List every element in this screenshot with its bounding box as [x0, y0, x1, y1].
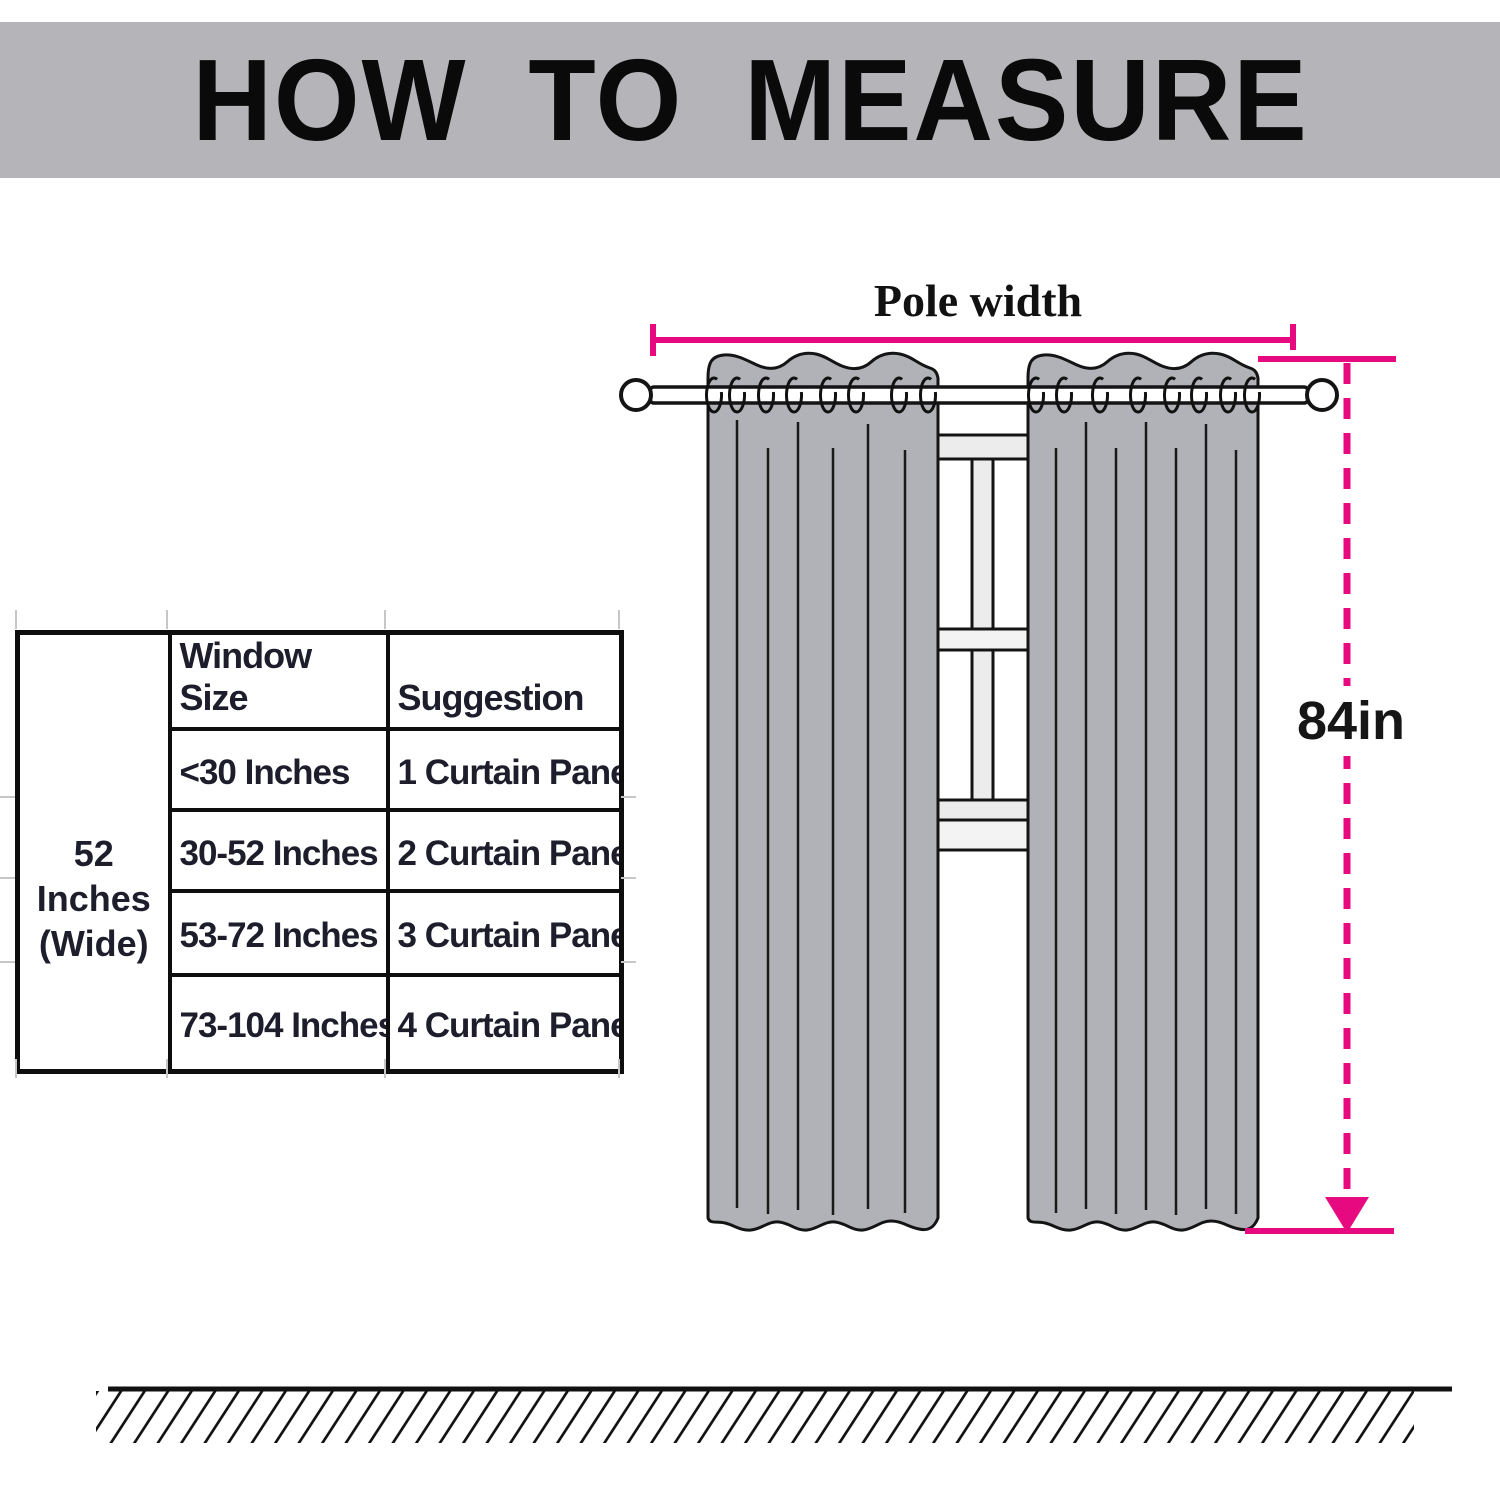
gridline-stub — [621, 877, 636, 879]
suggestion-cell: 1 Curtain Panel — [388, 729, 622, 810]
column-header-window-size: Window Size — [170, 633, 388, 730]
rod-finial-left — [621, 380, 651, 410]
gridline-stub — [166, 1059, 168, 1078]
window-sill-lower — [925, 820, 1041, 850]
window — [925, 399, 1041, 850]
pole-width-measure — [653, 324, 1293, 356]
gridline-stub — [0, 961, 15, 963]
window-crossbar — [934, 629, 1032, 650]
suggestion-cell: 4 Curtain Panel — [388, 975, 622, 1071]
gridline-stub — [384, 610, 386, 629]
floor-hatching — [96, 1391, 1414, 1443]
rod-finial-right — [1307, 380, 1337, 410]
arrow-down-icon — [1325, 1197, 1369, 1233]
height-label: 84in — [1290, 686, 1412, 756]
window-size-cell: 53-72 Inches — [170, 891, 388, 975]
panel-width-cell: 52 Inches (Wide) — [18, 633, 170, 1072]
window-size-cell: <30 Inches — [170, 729, 388, 810]
curtain-panel-left — [708, 353, 938, 1230]
suggestion-cell: 3 Curtain Panel — [388, 891, 622, 975]
curtain-fabric — [708, 353, 938, 1230]
suggestion-cell: 2 Curtain Panel — [388, 810, 622, 891]
window-size-cell: 30-52 Inches — [170, 810, 388, 891]
floor — [96, 1389, 1452, 1443]
panel-width-line2: (Wide) — [21, 921, 167, 966]
size-suggestion-table: 52 Inches (Wide) Window Size Suggestion … — [15, 630, 624, 1074]
pole-width-label: Pole width — [828, 274, 1128, 327]
gridline-stub — [0, 877, 15, 879]
height-measure — [1245, 359, 1396, 1233]
gridline-stub — [0, 796, 15, 798]
gridline-stub — [618, 610, 620, 629]
window-size-cell: 73-104 Inches — [170, 975, 388, 1071]
gridline-stub — [15, 610, 17, 629]
gridline-stub — [15, 1059, 17, 1078]
window-top-molding — [929, 435, 1037, 459]
curtain-rod — [650, 387, 1308, 403]
gridline-stub — [384, 1059, 386, 1078]
gridline-stub — [621, 796, 636, 798]
curtain-fabric — [1028, 353, 1258, 1230]
window-sill-upper — [929, 800, 1037, 820]
gridline-stub — [618, 1059, 620, 1078]
gridline-stub — [621, 961, 636, 963]
column-header-suggestion: Suggestion — [388, 633, 622, 730]
gridline-stub — [166, 610, 168, 629]
curtain-panel-right — [1028, 353, 1258, 1230]
panel-width-line1: 52 Inches — [21, 831, 167, 921]
how-to-measure-infographic: HOW TO MEASURE — [0, 0, 1500, 1500]
